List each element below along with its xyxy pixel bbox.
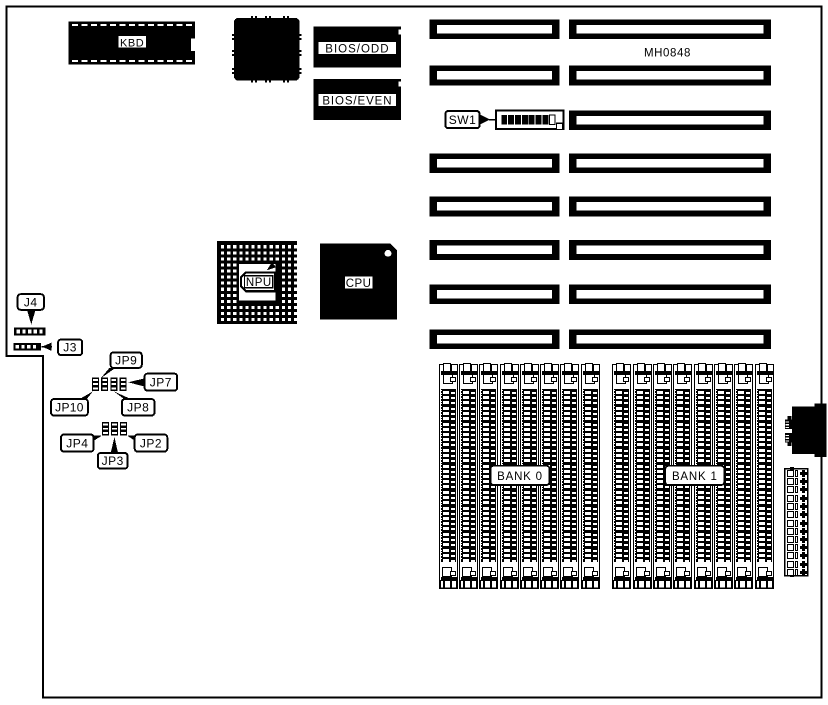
svg-text:BIOS/EVEN: BIOS/EVEN [322,95,392,107]
svg-text:MH0848: MH0848 [644,48,691,60]
svg-text:BANK 1: BANK 1 [672,471,718,483]
svg-text:CPU: CPU [346,278,372,290]
svg-text:SW1: SW1 [449,113,477,127]
svg-text:J4: J4 [24,295,38,309]
svg-text:KBD: KBD [120,37,144,49]
svg-text:JP7: JP7 [150,375,172,389]
svg-text:JP4: JP4 [66,436,88,450]
svg-text:NPU: NPU [246,277,272,289]
svg-text:BANK 0: BANK 0 [497,471,543,483]
svg-text:JP9: JP9 [115,353,137,367]
svg-text:BIOS/ODD: BIOS/ODD [325,43,389,55]
svg-text:JP8: JP8 [127,401,149,415]
svg-text:JP3: JP3 [102,454,124,468]
svg-text:J3: J3 [63,341,77,355]
svg-text:JP10: JP10 [55,401,84,415]
svg-text:JP2: JP2 [140,436,162,450]
